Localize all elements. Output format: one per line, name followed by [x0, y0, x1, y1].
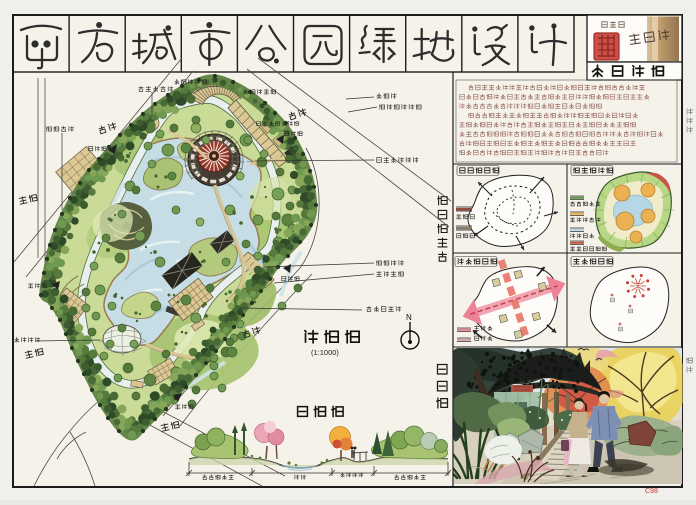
svg-text:(1:1000): (1:1000) [311, 348, 339, 357]
svg-text:N: N [406, 313, 412, 322]
svg-text:C98: C98 [645, 488, 658, 495]
